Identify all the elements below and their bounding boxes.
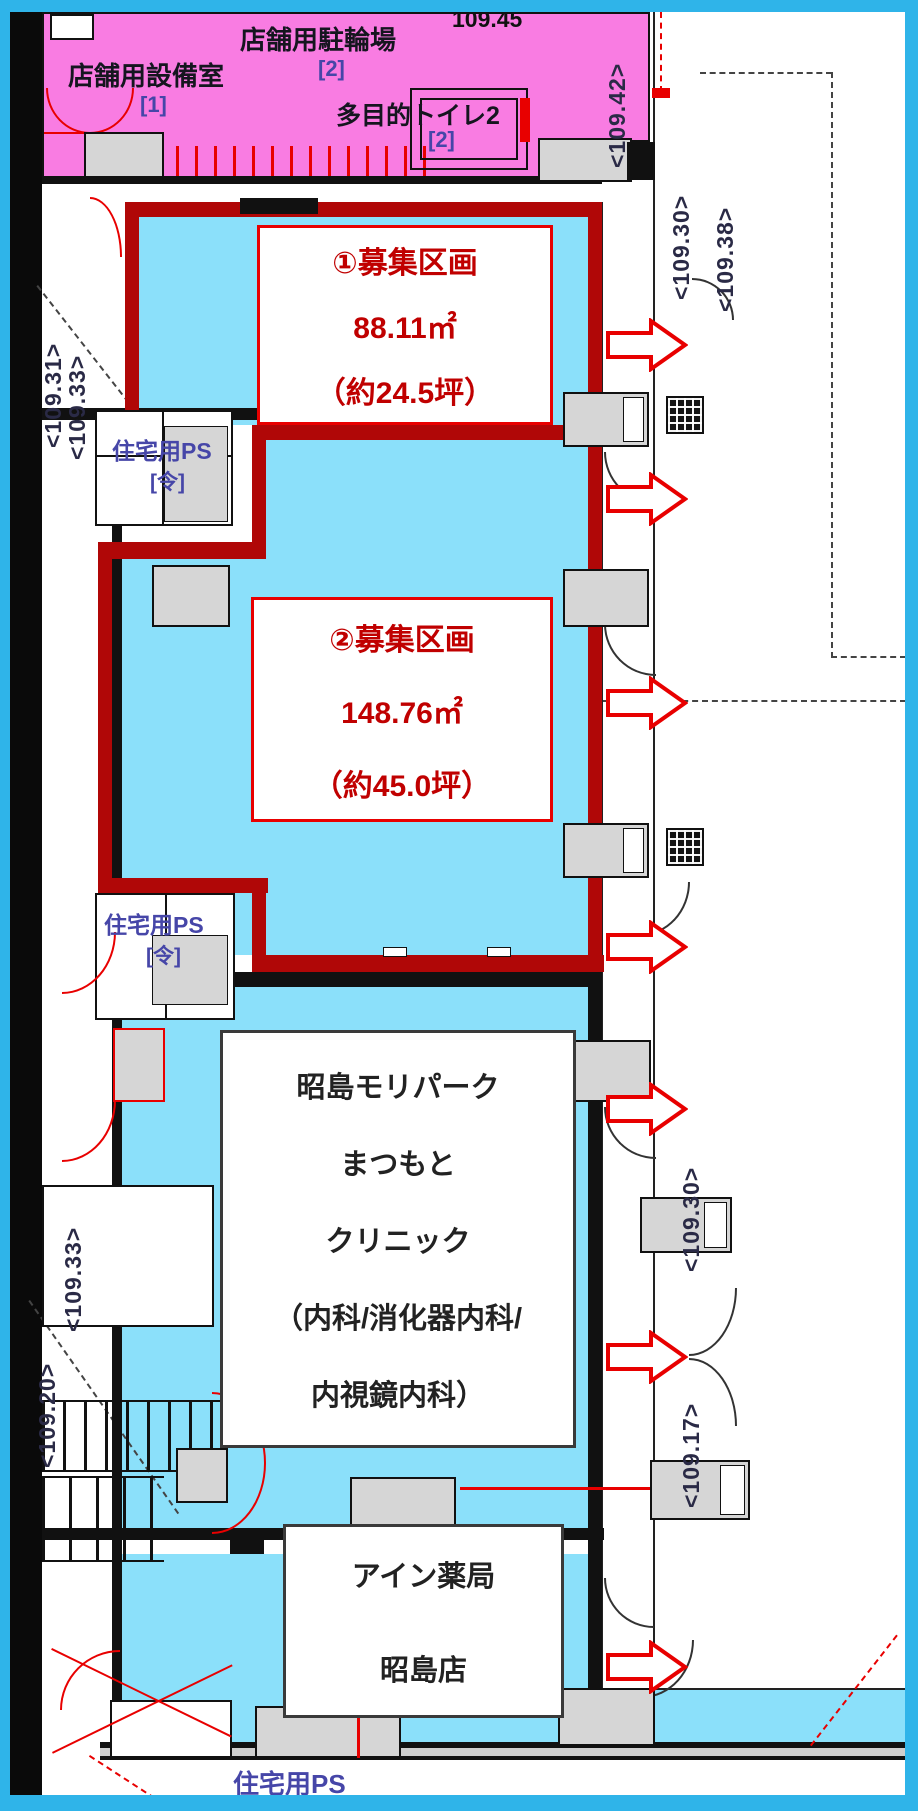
elevation-marker: <109.20> xyxy=(34,1363,61,1468)
ps-number-2: [令] xyxy=(146,940,181,970)
unit2-label-box: ②募集区画 148.76㎡ （約45.0坪） xyxy=(251,597,553,822)
partition-border-left2 xyxy=(98,542,112,893)
frame-top xyxy=(0,0,918,12)
left-black-strip xyxy=(10,12,42,1795)
unit2-area: 148.76㎡ xyxy=(341,688,463,732)
toilet-label: 多目的トイレ2 xyxy=(336,96,500,132)
elevation-marker: <109.33> xyxy=(64,355,91,460)
partition-border-jog-h xyxy=(98,878,268,893)
unit1-tsubo: （約24.5坪） xyxy=(316,368,494,412)
grate-vent xyxy=(666,828,704,866)
entry-door-box xyxy=(50,14,94,40)
pharmacy-label-box: アイン薬局 昭島店 xyxy=(283,1524,564,1718)
clinic-line5: 内視鏡内科） xyxy=(311,1372,485,1414)
entrance-module xyxy=(84,132,164,178)
entrance-module xyxy=(563,569,649,627)
redline-dashdot-top xyxy=(660,12,662,92)
entrance-module-dark xyxy=(627,142,655,180)
partition-border-step-v xyxy=(252,425,266,559)
grate-vent xyxy=(666,396,704,434)
elevation-marker: <109.31> xyxy=(40,343,67,448)
bicycle-parking-label: 店舗用駐輪場 xyxy=(240,20,396,57)
frame-left xyxy=(0,0,10,1811)
partition-border-bottom1 xyxy=(252,425,602,440)
clinic-line4: （内科/消化器内科/ xyxy=(274,1295,522,1337)
interior-fixture xyxy=(152,565,230,627)
ps-number-1: [令] xyxy=(150,466,185,496)
clinic-line1: 昭島モリパーク xyxy=(296,1064,499,1106)
floor-plan-canvas: 店舗用駐輪場 [2] 店舗用設備室 [1] 多目的トイレ2 [2] 109.45… xyxy=(0,0,918,1811)
boundary-line-v1 xyxy=(831,72,833,658)
bicycle-parking-number: [2] xyxy=(318,56,345,82)
bicycle-stall-ticks xyxy=(138,146,428,176)
unit2-name: ②募集区画 xyxy=(329,615,474,659)
ps-label-2: 住宅用PS xyxy=(104,906,204,940)
equipment-room-number: [1] xyxy=(140,92,167,118)
module-panel xyxy=(623,397,644,442)
module-panel xyxy=(704,1202,727,1248)
frame-bottom xyxy=(0,1795,918,1811)
entrance-arrow-icon xyxy=(606,920,688,974)
red-service-line xyxy=(460,1487,650,1490)
partition-border-step-h xyxy=(98,542,266,559)
pharmacy-corner-block xyxy=(230,1540,264,1554)
door-arc-red xyxy=(62,1100,116,1162)
elevation-marker: <109.33> xyxy=(60,1227,87,1332)
door-arc xyxy=(604,1578,654,1628)
partition-border-left1 xyxy=(125,202,139,416)
module-panel xyxy=(720,1465,745,1515)
unit1-label-box: ①募集区画 88.11㎡ （約24.5坪） xyxy=(257,225,553,425)
unit1-name: ①募集区画 xyxy=(332,238,477,282)
partition-border-bottom2 xyxy=(252,955,604,972)
elevation-marker: <109.30> xyxy=(678,1167,705,1272)
door-arc xyxy=(604,624,656,676)
toilet-door-mark xyxy=(520,98,530,142)
unit2-tsubo: （約45.0坪） xyxy=(313,761,491,805)
red-framed-module xyxy=(113,1028,165,1102)
interior-fixture xyxy=(176,1448,228,1503)
canopy-edge-line xyxy=(653,12,655,1692)
entrance-module xyxy=(558,1688,655,1746)
partition-border-top xyxy=(125,202,602,217)
clinic-line2: まつもと xyxy=(340,1141,455,1183)
boundary-line-h1 xyxy=(700,72,832,74)
elevation-marker: <109.42> xyxy=(604,63,631,168)
elevation-marker: <109.30> xyxy=(668,195,695,300)
partition-border-right2b xyxy=(588,622,602,970)
entrance-module xyxy=(563,823,649,878)
elevation-marker: <109.38> xyxy=(712,207,739,312)
module-panel xyxy=(623,828,644,873)
elevation-marker: <109.17> xyxy=(678,1403,705,1508)
door-arc-double-top xyxy=(689,1288,737,1356)
lintel-block xyxy=(240,198,318,214)
door-arc-red xyxy=(90,197,122,257)
entrance-module xyxy=(563,392,649,447)
clinic-line3: クリニック xyxy=(325,1218,470,1260)
entrance-arrow-icon xyxy=(606,318,688,372)
redline-cap xyxy=(652,88,670,98)
frame-right xyxy=(905,0,918,1811)
ps-label-1: 住宅用PS xyxy=(112,432,212,466)
entrance-arrow-icon xyxy=(606,1082,688,1136)
unit1-area: 88.11㎡ xyxy=(353,303,456,347)
equipment-room-label: 店舗用設備室 xyxy=(68,56,224,93)
pharmacy-line1: アイン薬局 xyxy=(352,1553,496,1595)
entrance-arrow-icon xyxy=(606,1330,688,1384)
toilet-number: [2] xyxy=(428,127,455,153)
clinic-label-box: 昭島モリパーク まつもと クリニック （内科/消化器内科/ 内視鏡内科） xyxy=(220,1030,576,1448)
entrance-arrow-icon xyxy=(606,472,688,526)
pharmacy-line2: 昭島店 xyxy=(380,1647,467,1689)
interior-fixture xyxy=(350,1477,456,1527)
entrance-arrow-icon xyxy=(606,676,688,730)
staircase-lower xyxy=(42,1476,164,1562)
entrance-arrow-icon xyxy=(606,1640,688,1694)
bar-tab-1 xyxy=(383,947,407,957)
partition-border-right2a xyxy=(588,440,602,572)
bar-tab-2 xyxy=(487,947,511,957)
boundary-line-h2 xyxy=(831,656,906,658)
